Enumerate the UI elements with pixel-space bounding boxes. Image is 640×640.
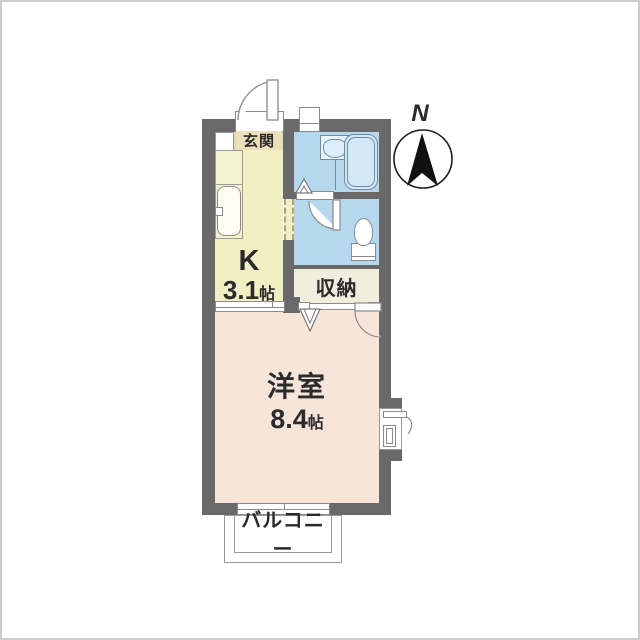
western-room-label: 洋室 8.4帖 [215, 368, 379, 438]
dashed-opening [284, 199, 294, 240]
bathtub-inner-line [347, 137, 375, 187]
kitchen-label-k: K [239, 246, 260, 276]
wall-stub-utility-top [379, 398, 402, 408]
washbasin-drain-line [335, 160, 336, 190]
wall-toilet-storage-divider [294, 265, 379, 269]
utility-hatch-box-inner [386, 428, 393, 444]
western-room-name: 洋室 [267, 371, 327, 403]
floorplan-canvas: N 玄関 K 3.1帖 収納 洋室 8.4帖 バルコニー [0, 0, 640, 640]
utility-door-swing-icon [407, 417, 412, 434]
wall-stub-utility-bottom [379, 450, 402, 461]
western-room-size: 8.4帖 [270, 404, 324, 435]
entry-door-sill [235, 111, 284, 132]
kitchen-size-label: 3.1帖 [223, 277, 275, 304]
wall-kitchen-storage-divider [283, 240, 294, 305]
storage-opening-post-right [368, 302, 379, 311]
kitchen-label: K 3.1帖 [215, 242, 283, 308]
wall-top [202, 119, 391, 132]
compass-north-label: N [400, 100, 440, 128]
utility-hatch-door [383, 411, 407, 418]
kitchen-faucet-icon [215, 207, 223, 216]
toilet-icon [354, 218, 373, 246]
shoe-cabinet [215, 132, 234, 151]
storage-opening-post-left [298, 302, 310, 311]
north-arrow-icon [394, 130, 452, 188]
wall-kitchen-bath-divider [283, 132, 294, 199]
toilet-door-opening [296, 191, 334, 200]
balcony-label: バルコニー [234, 519, 332, 547]
storage-label: 収納 [294, 274, 379, 298]
wall-left [202, 119, 215, 515]
bathroom-window-icon [299, 107, 320, 132]
genkan-label: 玄関 [236, 131, 282, 150]
